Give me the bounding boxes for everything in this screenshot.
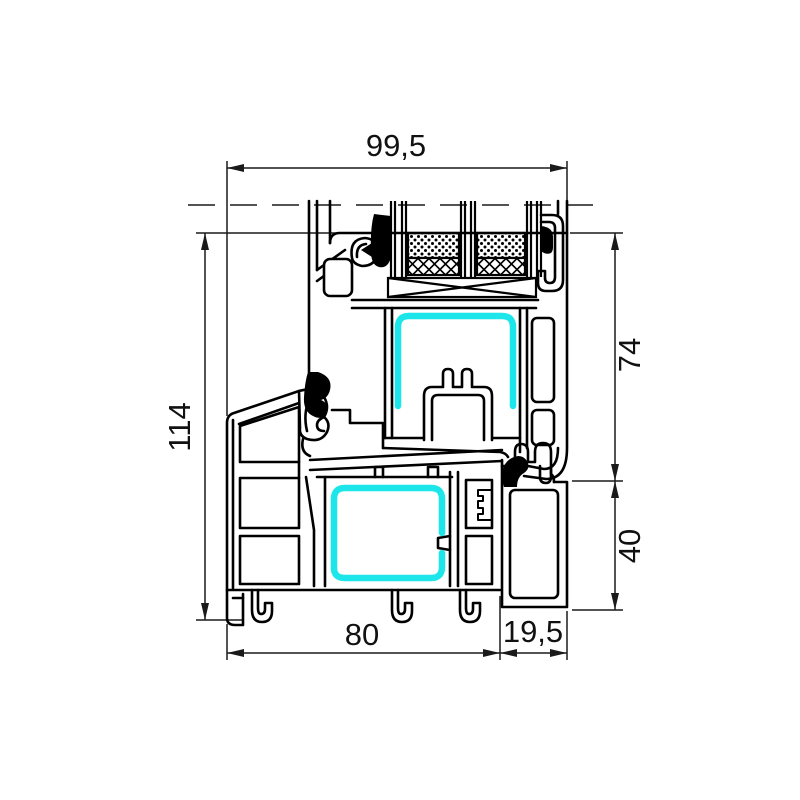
reinforcement-lower-b	[334, 553, 442, 578]
reinforcement-lower-a	[334, 488, 442, 568]
gasket-glass-right	[541, 226, 553, 254]
hardware-groove	[424, 369, 492, 440]
dim-label-frame-offset-width: 19,5	[503, 614, 563, 649]
dim-label-frame-bottom-width: 80	[345, 617, 379, 652]
gasket-glass-left	[371, 214, 391, 267]
steel-reinforcement-highlights	[334, 316, 513, 578]
dim-label-overall-height: 114	[162, 402, 197, 451]
glazing-spacer-left	[408, 233, 459, 275]
dim-label-sash-height: 74	[612, 338, 647, 372]
glass-pane-middle	[461, 201, 475, 277]
gasket-frame-sash-left	[304, 372, 331, 418]
glazing-support-block	[388, 278, 536, 297]
window-profile-section-drawing: 99,5 114 74 40 80 19,5	[0, 0, 800, 800]
technical-drawing-canvas: 99,5 114 74 40 80 19,5	[0, 0, 800, 800]
dim-label-top-width: 99,5	[366, 128, 426, 163]
glass-pane-left	[391, 201, 406, 277]
glass-pane-right	[527, 201, 541, 277]
dim-label-frame-lower-height: 40	[612, 529, 647, 563]
glazing-unit	[388, 201, 541, 297]
frame-profile	[227, 389, 567, 625]
gasket-frame-sash-right	[502, 456, 528, 487]
glazing-spacer-right	[477, 233, 525, 275]
